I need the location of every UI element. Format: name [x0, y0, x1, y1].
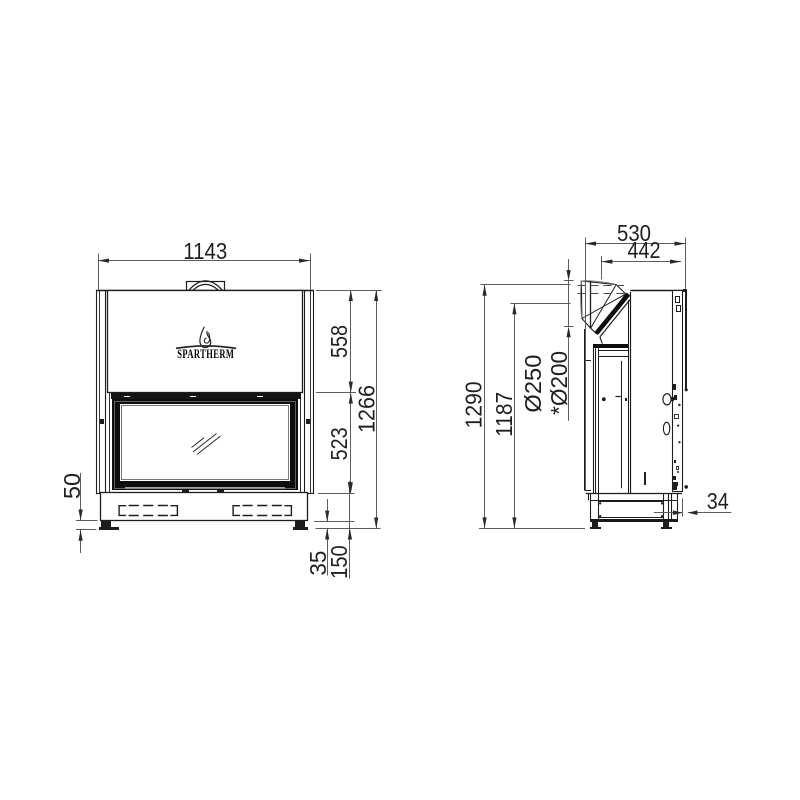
svg-text:1290: 1290 — [461, 381, 487, 428]
svg-text:442: 442 — [628, 237, 661, 263]
svg-text:558: 558 — [326, 325, 352, 358]
svg-text:1143: 1143 — [183, 238, 227, 264]
svg-text:SPARTHERM: SPARTHERM — [177, 347, 234, 361]
svg-text:*Ø200: *Ø200 — [546, 351, 572, 415]
svg-text:Ø250: Ø250 — [520, 355, 546, 413]
svg-text:523: 523 — [326, 427, 352, 460]
svg-text:50: 50 — [59, 473, 85, 499]
svg-text:1266: 1266 — [354, 385, 380, 433]
svg-text:1187: 1187 — [491, 392, 517, 437]
svg-text:35: 35 — [305, 551, 331, 576]
svg-text:34: 34 — [707, 488, 729, 514]
